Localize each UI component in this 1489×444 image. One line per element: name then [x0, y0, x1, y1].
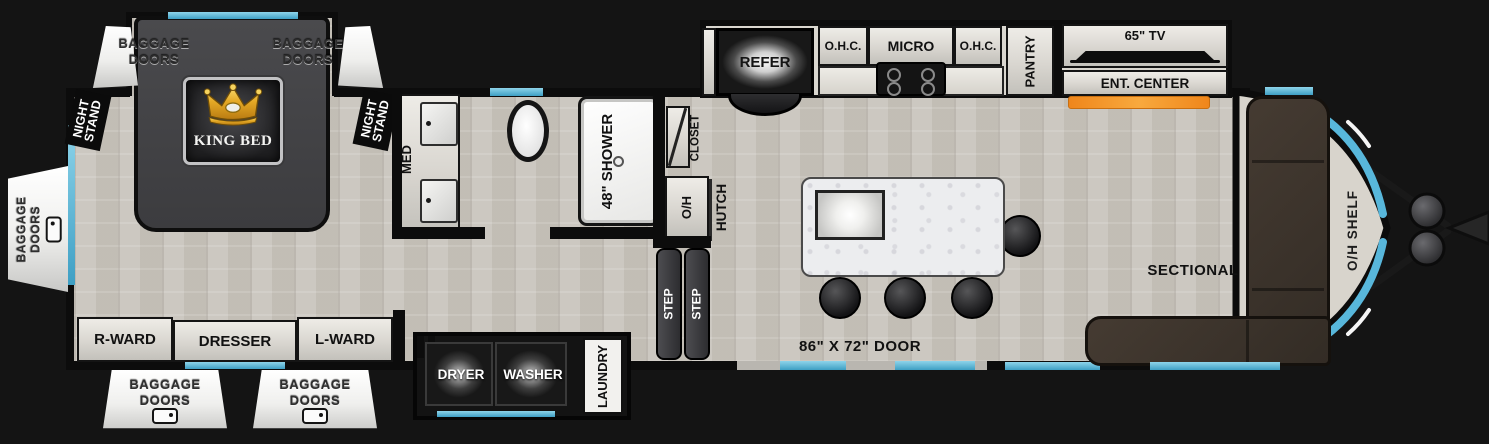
- med-cabinet-label: MED: [394, 136, 418, 182]
- bedroom-wall-stub: [393, 310, 405, 366]
- hitch-coupler-icon: [1449, 212, 1489, 244]
- burner-icon: [887, 68, 901, 82]
- burner-icon: [921, 68, 935, 82]
- pantry-label: PANTRY: [1006, 26, 1054, 96]
- window-accent: [1265, 87, 1313, 95]
- bar-stool: [951, 277, 993, 319]
- hutch-label: HUTCH: [708, 174, 736, 240]
- bath-wall: [392, 227, 485, 239]
- crown-icon: [200, 83, 266, 127]
- bar-stool: [884, 277, 926, 319]
- vanity-sink: [420, 179, 458, 223]
- shower-label: 48" SHOWER: [578, 96, 638, 226]
- baggage-doors-label: BAGGAGE DOORS: [264, 36, 352, 67]
- sofa-seam: [1252, 288, 1324, 291]
- baggage-door-bottom: BAGGAGE DOORS: [103, 370, 227, 432]
- window-accent: [1005, 362, 1100, 370]
- entry-door-window: [895, 361, 975, 370]
- baggage-doors-label: BAGGAGE DOORS: [110, 36, 198, 67]
- kitchen-end-panel: [702, 28, 716, 96]
- door-icon: [152, 408, 178, 424]
- closet-label: CLOSET: [684, 104, 706, 172]
- baggage-doors-label: BAGGAGE DOORS: [15, 196, 62, 262]
- baggage-door-rear: BAGGAGE DOORS: [8, 166, 68, 292]
- door-icon: [45, 216, 61, 242]
- bar-stool: [999, 215, 1041, 257]
- vanity-sink: [420, 102, 458, 146]
- window-accent: [168, 12, 298, 19]
- bar-stool: [819, 277, 861, 319]
- dryer-label: DRYER: [425, 366, 497, 384]
- bath-wall: [550, 227, 662, 239]
- burner-icon: [887, 82, 901, 96]
- propane-tank-icon: [1410, 194, 1444, 228]
- fireplace-accent: [1068, 96, 1210, 109]
- window-accent: [490, 88, 543, 96]
- rv-floorplan: KING BED NIGHT STAND NIGHT STAND R-WARD …: [0, 0, 1489, 444]
- sectional-sofa-chaise: [1085, 316, 1331, 366]
- sectional-label: SECTIONAL: [1128, 262, 1258, 279]
- faucet-icon: [426, 121, 431, 126]
- window-accent: [437, 411, 555, 417]
- king-bed-label: KING BED: [186, 133, 280, 150]
- tv-label: 65" TV: [1064, 28, 1226, 43]
- overhead-cabinet-label: O/H: [665, 176, 709, 238]
- faucet-icon: [426, 198, 431, 203]
- entry-door-window: [780, 361, 846, 370]
- divider: [1054, 24, 1062, 98]
- cooktop: [876, 62, 946, 96]
- oh-shelf-label: O/H SHELF: [1326, 150, 1378, 310]
- washer-label: WASHER: [495, 366, 571, 384]
- door-icon: [302, 408, 328, 424]
- step-label: STEP: [656, 248, 682, 360]
- entry-door-label: 86" X 72" DOOR: [790, 338, 930, 355]
- microwave: MICRO: [868, 26, 954, 66]
- propane-tank-icon: [1410, 231, 1444, 265]
- window-accent: [68, 125, 75, 285]
- window-accent: [1150, 362, 1280, 370]
- burner-icon: [921, 82, 935, 96]
- overhead-cabinet-right: O.H.C.: [954, 26, 1002, 66]
- toilet: [507, 100, 549, 162]
- refrigerator: REFER: [716, 28, 814, 96]
- sofa-seam: [1246, 320, 1249, 362]
- wardrobe-right: R-WARD: [77, 317, 173, 362]
- wardrobe-left: L-WARD: [297, 317, 393, 362]
- window-accent: [185, 362, 285, 369]
- laundry-tab: [417, 336, 424, 358]
- sofa-seam: [1252, 160, 1324, 163]
- kitchen-island: [801, 177, 1005, 277]
- laundry-label: LAUNDRY: [583, 338, 623, 414]
- step-label: STEP: [684, 248, 710, 360]
- baggage-door-bottom: BAGGAGE DOORS: [253, 370, 377, 432]
- dresser: DRESSER: [173, 320, 297, 362]
- overhead-cabinet-left: O.H.C.: [818, 26, 868, 66]
- bath-wall: [653, 92, 665, 248]
- king-bed-emblem: KING BED: [183, 77, 283, 165]
- island-sink: [815, 190, 885, 240]
